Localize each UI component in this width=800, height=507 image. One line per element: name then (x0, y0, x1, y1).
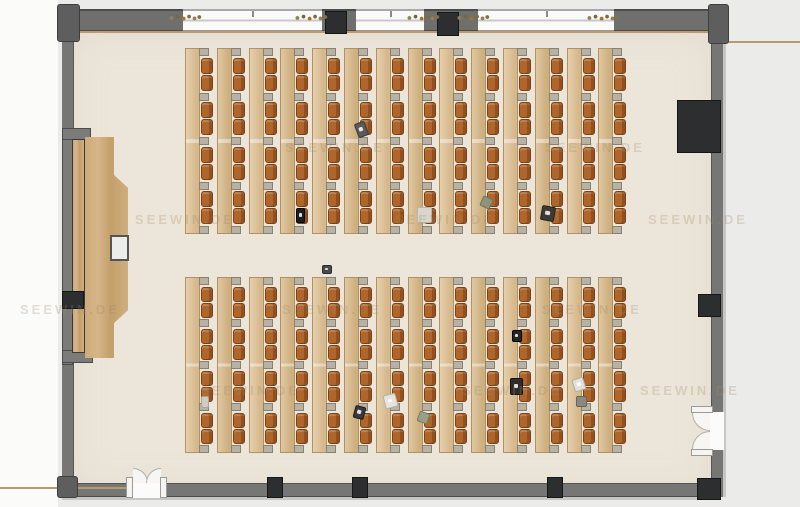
floor-object-marking (545, 210, 550, 215)
floor-object[interactable] (201, 396, 209, 408)
floor-object[interactable] (322, 265, 332, 274)
floor-object-marking (299, 213, 302, 217)
floor-plan-canvas: SEEWIN.DESEEWIN.DESEEWIN.DESEEWIN.DESEEW… (0, 0, 800, 507)
floor-object[interactable] (576, 396, 587, 407)
floor-object-marking (357, 410, 361, 414)
floor-object[interactable] (510, 378, 523, 395)
floor-object-marking (325, 268, 328, 270)
floor-objects-layer (0, 0, 800, 507)
floor-object[interactable] (382, 393, 398, 410)
floor-object-marking (387, 398, 392, 403)
floor-object[interactable] (296, 208, 305, 223)
floor-object[interactable] (479, 195, 494, 210)
floor-object-marking (358, 127, 363, 132)
floor-object[interactable] (540, 205, 556, 222)
floor-object-marking (515, 334, 518, 337)
floor-object[interactable] (353, 405, 367, 420)
floor-object[interactable] (354, 121, 369, 139)
floor-object[interactable] (417, 207, 432, 223)
floor-object-marking (576, 382, 581, 386)
floor-object-marking (514, 384, 518, 389)
floor-object[interactable] (571, 376, 586, 392)
floor-object[interactable] (512, 330, 522, 342)
floor-object[interactable] (416, 410, 430, 424)
